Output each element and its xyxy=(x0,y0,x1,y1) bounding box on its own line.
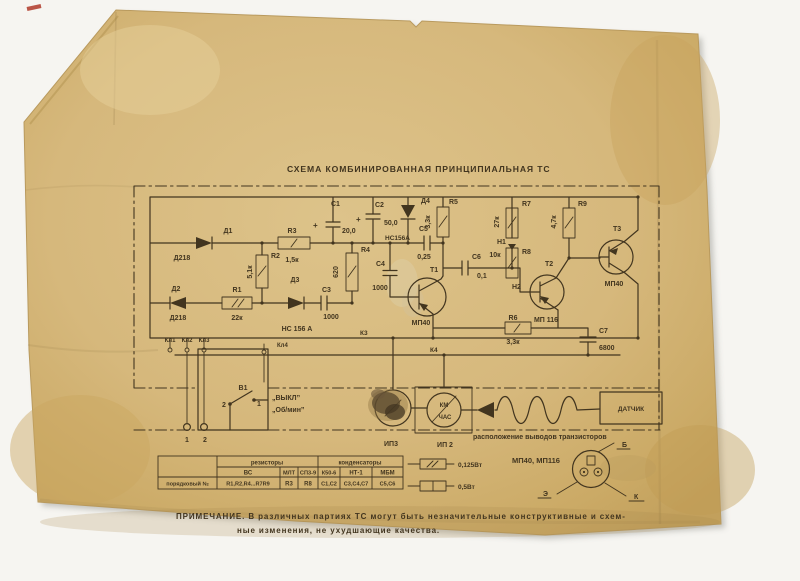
meter-ip2-scale-top: КМ xyxy=(440,403,449,409)
pinout-caption: расположение выводов транзисторов xyxy=(473,434,607,441)
label-r8-value: 10к xyxy=(489,252,501,259)
label-c2: С2 xyxy=(375,202,384,209)
table-type-mbm: МБМ xyxy=(380,471,394,477)
table-value-vs: R1,R2,R4...R7R9 xyxy=(226,482,270,488)
label-r9-value: 4,7к xyxy=(551,215,558,229)
label-kl1: Кл1 xyxy=(165,338,176,344)
label-terminal-1: 1 xyxy=(185,437,189,444)
table-type-sp39: СП3-9 xyxy=(300,471,316,477)
label-c2-plus: + xyxy=(356,215,361,224)
legend-power-big: 0,5Вт xyxy=(458,484,475,491)
table-value-r8: R8 xyxy=(304,482,312,488)
schematic-title: СХЕМА КОМБИНИРОВАННАЯ ПРИНЦИПИАЛЬНАЯ ТС xyxy=(287,164,551,174)
table-value-c3c4c7: С3,С4,С7 xyxy=(344,482,369,488)
label-c1-value: 20,0 xyxy=(342,228,356,235)
label-r7: R7 xyxy=(522,201,531,208)
pinout-types: МП40, МП116 xyxy=(512,456,560,465)
label-d1-type: Д218 xyxy=(174,255,191,262)
label-r8: R8 xyxy=(522,249,531,256)
label-h1: Н1 xyxy=(497,239,506,246)
label-switch-mode: „Об/мин” xyxy=(272,406,304,414)
label-r3-value: 1,5к xyxy=(285,257,299,264)
label-d2-type: Д218 xyxy=(170,315,187,322)
label-ip2: ИП 2 xyxy=(437,442,453,449)
table-value-c1c2: С1,С2 xyxy=(321,482,337,488)
red-pen-mark xyxy=(27,6,41,9)
label-d4-type: НС156А xyxy=(385,235,410,242)
label-k3: К3 xyxy=(360,330,368,337)
label-r4-value: 620 xyxy=(333,266,340,278)
label-kl4: Кл4 xyxy=(277,343,288,349)
table-type-nt1: НТ-1 xyxy=(349,471,363,477)
table-group-resistors: резисторы xyxy=(251,461,283,467)
label-d2: Д2 xyxy=(172,286,181,293)
label-terminal-2: 2 xyxy=(203,437,207,444)
label-ip3: ИП3 xyxy=(384,441,398,448)
scanned-document-page: СХЕМА КОМБИНИРОВАННАЯ ПРИНЦИПИАЛЬНАЯ ТС xyxy=(0,0,800,581)
table-type-vs: ВС xyxy=(244,471,253,477)
pinout-emitter-label: Э xyxy=(543,491,548,498)
label-c3: С3 xyxy=(322,287,331,294)
table-value-c5c6: С5,С6 xyxy=(380,482,396,488)
paper-sheet xyxy=(10,6,755,539)
label-c4: С4 xyxy=(376,261,385,268)
table-row-header: порядковый № xyxy=(166,481,209,488)
label-c4-value: 1000 xyxy=(372,285,388,292)
label-t3-type: МП40 xyxy=(605,281,624,288)
label-switch-off: „ВЫКЛ” xyxy=(272,395,300,402)
label-t1-type: МП40 xyxy=(412,320,431,327)
label-c2-value: 50,0 xyxy=(384,220,398,227)
label-r5-value: 3,3к xyxy=(425,215,432,229)
label-kl2: Кл2 xyxy=(182,338,193,344)
label-c7: С7 xyxy=(599,328,608,335)
table-type-mlt: МЛТ xyxy=(283,471,296,477)
label-switch-pos1: 1 xyxy=(257,401,261,408)
label-c1: С1 xyxy=(331,201,340,208)
label-d3: Д3 xyxy=(291,277,300,284)
label-r4: R4 xyxy=(361,247,370,254)
label-c5-value: 0,25 xyxy=(417,254,431,261)
label-r9: R9 xyxy=(578,201,587,208)
label-r2-value: 5,1к xyxy=(247,265,254,279)
sensor-label: ДАТЧИК xyxy=(618,406,644,413)
label-c1-plus: + xyxy=(313,221,318,230)
label-d1: Д1 xyxy=(224,228,233,235)
legend-power-small: 0,125Вт xyxy=(458,462,482,469)
pinout-base-label: Б xyxy=(622,442,627,449)
label-r1-value: 22к xyxy=(231,315,243,322)
label-r7-value: 27к xyxy=(494,216,501,228)
note-line2: ные изменения, не ухудшающие качества. xyxy=(237,526,440,535)
label-d4: Д4 xyxy=(421,198,430,205)
label-r2: R2 xyxy=(271,253,280,260)
label-c7-value: 6800 xyxy=(599,345,615,352)
label-t2-type: МП 116 xyxy=(534,317,558,324)
label-t3: Т3 xyxy=(613,226,621,233)
label-c6-value: 0,1 xyxy=(477,273,487,280)
label-switch-pos2: 2 xyxy=(222,402,226,409)
label-t2: Т2 xyxy=(545,261,553,268)
note-line1: ПРИМЕЧАНИЕ. В различных партиях ТС могут… xyxy=(176,512,626,521)
label-r5: R5 xyxy=(449,199,458,206)
label-switch-b1: В1 xyxy=(239,385,248,392)
pinout-collector-label: К xyxy=(634,494,639,501)
label-r6: R6 xyxy=(509,315,518,322)
label-kl3: Кл3 xyxy=(199,338,210,344)
label-t1: Т1 xyxy=(430,267,438,274)
meter-ip2-scale-bottom: ЧАС xyxy=(439,415,452,421)
label-k4: К4 xyxy=(430,347,438,354)
table-group-capacitors: конденсаторы xyxy=(338,461,381,467)
label-d3-type: НС 156 А xyxy=(282,326,313,333)
label-r3: R3 xyxy=(288,228,297,235)
schematic-scan: СХЕМА КОМБИНИРОВАННАЯ ПРИНЦИПИАЛЬНАЯ ТС xyxy=(0,0,800,581)
label-c6: С6 xyxy=(472,254,481,261)
label-r6-value: 3,3к xyxy=(506,339,520,346)
table-type-k506: К50-6 xyxy=(322,471,337,477)
ink-stain xyxy=(368,389,408,421)
label-h2: Н2 xyxy=(512,284,521,291)
table-value-r3: R3 xyxy=(285,482,293,488)
label-r1: R1 xyxy=(233,287,242,294)
label-c3-value: 1000 xyxy=(323,314,339,321)
